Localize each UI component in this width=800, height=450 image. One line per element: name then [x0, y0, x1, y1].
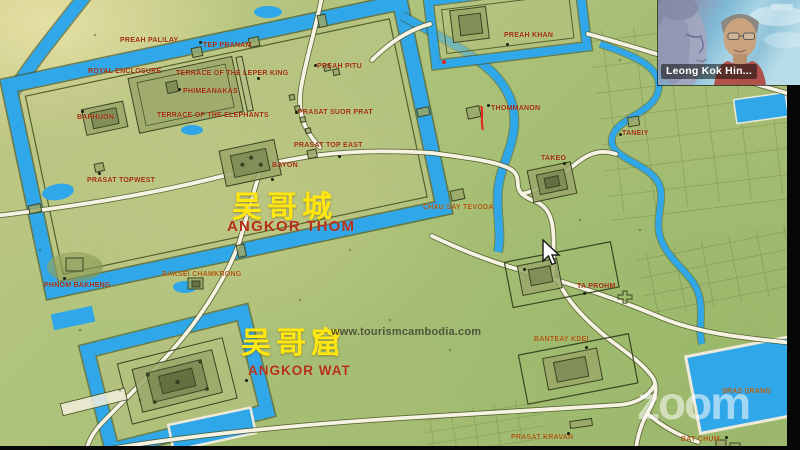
- temple-dot: [63, 277, 66, 280]
- zoom-watermark: zoom: [637, 376, 749, 430]
- temple-dot: [178, 88, 181, 91]
- mouse-cursor: [540, 238, 562, 268]
- map-label-tep-pranam: TEP PRANAM: [203, 42, 252, 49]
- map-label-prasat-top-east: PRASAT TOP EAST: [294, 142, 363, 149]
- camera-corner-overlay: [771, 4, 793, 12]
- map-label-preah-palilay: PREAH PALILAY: [120, 37, 178, 44]
- map-label-prasat-topwest: PRASAT TOPWEST: [87, 177, 155, 184]
- map-label-phimeanakas: PHIMEANAKAS: [183, 88, 238, 95]
- map-label-preah-pitu: PREAH PITU: [317, 63, 362, 70]
- participant-video[interactable]: Leong Kok Hin...: [658, 0, 800, 85]
- angkor-wat-title: ANGKOR WAT: [248, 363, 351, 378]
- map-label-takeo: TAKEO: [541, 155, 566, 162]
- map-label-bayon: BAYON: [272, 162, 298, 169]
- temple-dot: [585, 346, 588, 349]
- temple-dot: [199, 41, 202, 44]
- map-label-baksei-chamkrong: BAKSEI CHAMKRONG: [162, 271, 241, 278]
- temple-dot: [583, 292, 586, 295]
- map-label-prasat-kravan: PRASAT KRAVAN: [511, 434, 573, 441]
- temple-dot: [725, 436, 728, 439]
- map-label-terrace-of-the-leper-king: TERRACE OF THE LEPER KING: [176, 70, 288, 77]
- map-label-ta-prohm: TA PROHM: [577, 283, 616, 290]
- temple-dot: [295, 111, 298, 114]
- temple-dot: [619, 133, 622, 136]
- map-label-chau-say-tevoda: CHAU SAY TEVODA: [423, 204, 494, 211]
- temple-dot: [567, 432, 570, 435]
- temple-dot: [314, 64, 317, 67]
- angkor-wat-chinese-title: 吴哥窟: [241, 318, 346, 362]
- temple-dot: [523, 268, 526, 271]
- temple-dot: [487, 104, 490, 107]
- map-label-thommanon: THOMMANON: [491, 105, 540, 112]
- temple-dot: [257, 77, 260, 80]
- zoom-meeting-window: PREAH PALILAYTEP PRANAMROYAL ENCLOSURETE…: [0, 0, 800, 450]
- map-label-royal-enclosure: ROYAL ENCLOSURE: [88, 68, 161, 75]
- map-label-phnom-bakheng: PHNOM BAKHENG: [44, 282, 111, 289]
- angkor-thom-title: ANGKOR THOM: [227, 218, 355, 235]
- map-label-bat-chum: BAT CHUM: [681, 436, 720, 443]
- map-label-banteay-kdei: BANTEAY KDEI: [534, 336, 589, 343]
- temple-dot: [506, 43, 509, 46]
- map-label-baphuon: BAPHUON: [77, 114, 114, 121]
- temple-dot: [338, 155, 341, 158]
- map-label-taneiy: TANEIY: [622, 130, 649, 137]
- tourismcambodia-watermark: www.tourismcambodia.com: [331, 326, 481, 338]
- temple-dot: [245, 379, 248, 382]
- temple-dot: [271, 178, 274, 181]
- participant-name-label: Leong Kok Hin...: [661, 64, 757, 79]
- temple-dot: [98, 172, 101, 175]
- temple-dot: [563, 162, 566, 165]
- temple-dot: [81, 110, 84, 113]
- map-label-prasat-suor-prat: PRASAT SUOR PRAT: [298, 109, 373, 116]
- map-label-preah-khan: PREAH KHAN: [504, 32, 553, 39]
- map-label-terrace-of-the-elephants: TERRACE OF THE ELEPHANTS: [157, 112, 269, 119]
